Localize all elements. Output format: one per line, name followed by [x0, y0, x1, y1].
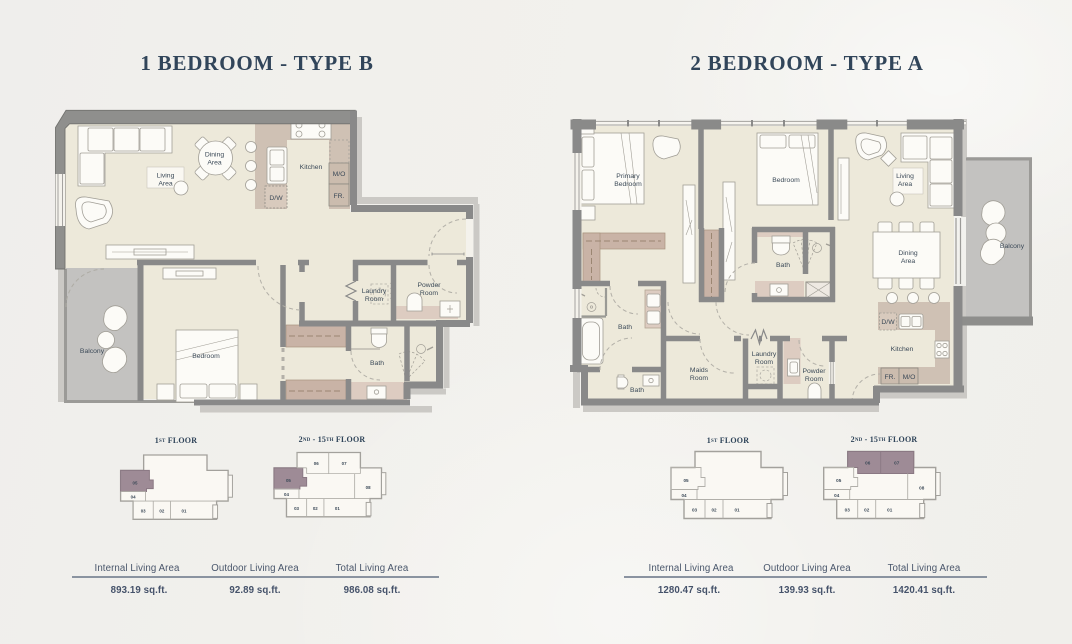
svg-text:Dining: Dining: [205, 152, 224, 159]
svg-text:FR.: FR.: [334, 193, 345, 200]
svg-text:05: 05: [683, 478, 689, 483]
svg-text:02: 02: [711, 508, 717, 513]
svg-text:Bath: Bath: [618, 324, 632, 331]
svg-text:01: 01: [734, 508, 740, 513]
svg-text:07: 07: [894, 461, 900, 466]
svg-text:04: 04: [131, 495, 136, 500]
svg-text:Balcony: Balcony: [80, 348, 105, 355]
svg-text:02: 02: [159, 509, 164, 514]
svg-text:01: 01: [335, 506, 340, 511]
svg-text:01: 01: [887, 508, 893, 513]
svg-text:Primary: Primary: [616, 173, 640, 180]
svg-text:02: 02: [313, 506, 318, 511]
svg-text:Bath: Bath: [630, 387, 644, 394]
svg-text:Laundry: Laundry: [362, 288, 387, 295]
svg-text:Maids: Maids: [690, 367, 709, 374]
svg-text:01: 01: [182, 509, 187, 514]
svg-text:Powder: Powder: [802, 368, 826, 375]
svg-text:Laundry: Laundry: [752, 351, 777, 358]
svg-text:Dining: Dining: [898, 250, 917, 257]
svg-text:03: 03: [845, 508, 851, 513]
svg-text:Area: Area: [158, 181, 173, 188]
svg-text:03: 03: [294, 506, 299, 511]
svg-text:Room: Room: [420, 290, 438, 297]
svg-text:Room: Room: [755, 359, 773, 366]
svg-text:Bath: Bath: [776, 262, 790, 269]
svg-text:Room: Room: [805, 376, 823, 383]
svg-text:Room: Room: [365, 296, 383, 303]
svg-text:03: 03: [692, 508, 698, 513]
svg-text:06: 06: [865, 461, 871, 466]
svg-text:05: 05: [133, 480, 138, 485]
svg-text:Area: Area: [901, 258, 916, 265]
svg-text:Area: Area: [207, 160, 222, 167]
svg-text:Bedroom: Bedroom: [614, 181, 642, 188]
svg-text:Living: Living: [157, 173, 175, 180]
svg-text:05: 05: [286, 478, 291, 483]
svg-text:04: 04: [834, 493, 840, 498]
svg-text:Balcony: Balcony: [1000, 243, 1025, 250]
svg-text:08: 08: [919, 486, 925, 491]
svg-text:03: 03: [141, 509, 146, 514]
svg-text:06: 06: [314, 461, 319, 466]
svg-text:02: 02: [864, 508, 870, 513]
svg-text:FR.: FR.: [885, 374, 896, 381]
svg-text:Bath: Bath: [370, 360, 384, 367]
svg-text:Kitchen: Kitchen: [300, 164, 323, 171]
svg-text:04: 04: [284, 492, 289, 497]
svg-text:D/W: D/W: [269, 195, 283, 202]
svg-text:04: 04: [681, 493, 687, 498]
svg-text:07: 07: [342, 461, 347, 466]
svg-text:M/O: M/O: [903, 374, 916, 381]
svg-text:05: 05: [836, 478, 842, 483]
svg-text:08: 08: [366, 485, 371, 490]
svg-text:Kitchen: Kitchen: [891, 346, 914, 353]
svg-text:Living: Living: [896, 173, 914, 180]
svg-text:Area: Area: [898, 181, 913, 188]
svg-text:Room: Room: [690, 375, 708, 382]
svg-text:D/W: D/W: [881, 319, 895, 326]
svg-text:M/O: M/O: [333, 171, 346, 178]
svg-text:Bedroom: Bedroom: [192, 353, 220, 360]
svg-text:Bedroom: Bedroom: [772, 177, 800, 184]
svg-text:Powder: Powder: [417, 282, 441, 289]
